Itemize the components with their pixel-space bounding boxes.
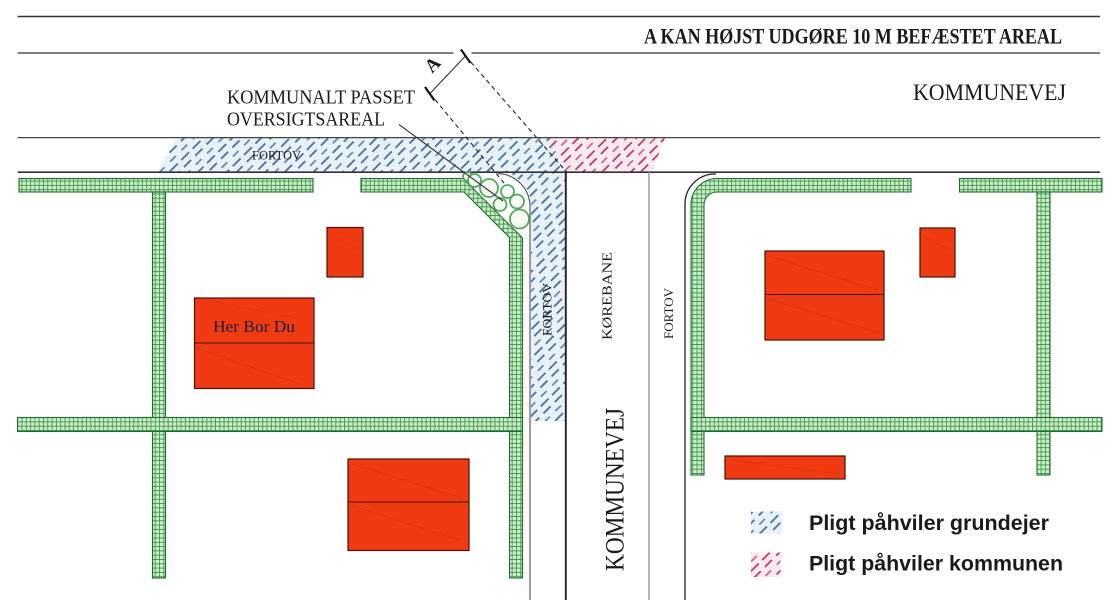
svg-text:FORTOV: FORTOV bbox=[540, 282, 555, 336]
svg-text:KOMMUNEVEJ: KOMMUNEVEJ bbox=[601, 408, 630, 571]
svg-text:A KAN HØJST UDGØRE 10 M BEFÆST: A KAN HØJST UDGØRE 10 M BEFÆSTET AREAL bbox=[644, 24, 1062, 49]
svg-text:KOMMUNALT PASSET: KOMMUNALT PASSET bbox=[227, 88, 415, 109]
svg-text:FORTOV: FORTOV bbox=[252, 148, 302, 163]
svg-text:Her Bor Du: Her Bor Du bbox=[213, 317, 296, 336]
svg-text:Pligt påhviler kommunen: Pligt påhviler kommunen bbox=[809, 552, 1063, 576]
svg-text:KØREBANE: KØREBANE bbox=[601, 252, 616, 340]
svg-text:Pligt påhviler grundejer: Pligt påhviler grundejer bbox=[809, 511, 1050, 535]
svg-text:FORTOV: FORTOV bbox=[661, 287, 676, 339]
svg-text:KOMMUNEVEJ: KOMMUNEVEJ bbox=[913, 80, 1066, 105]
svg-text:OVERSIGTSAREAL: OVERSIGTSAREAL bbox=[227, 110, 385, 131]
